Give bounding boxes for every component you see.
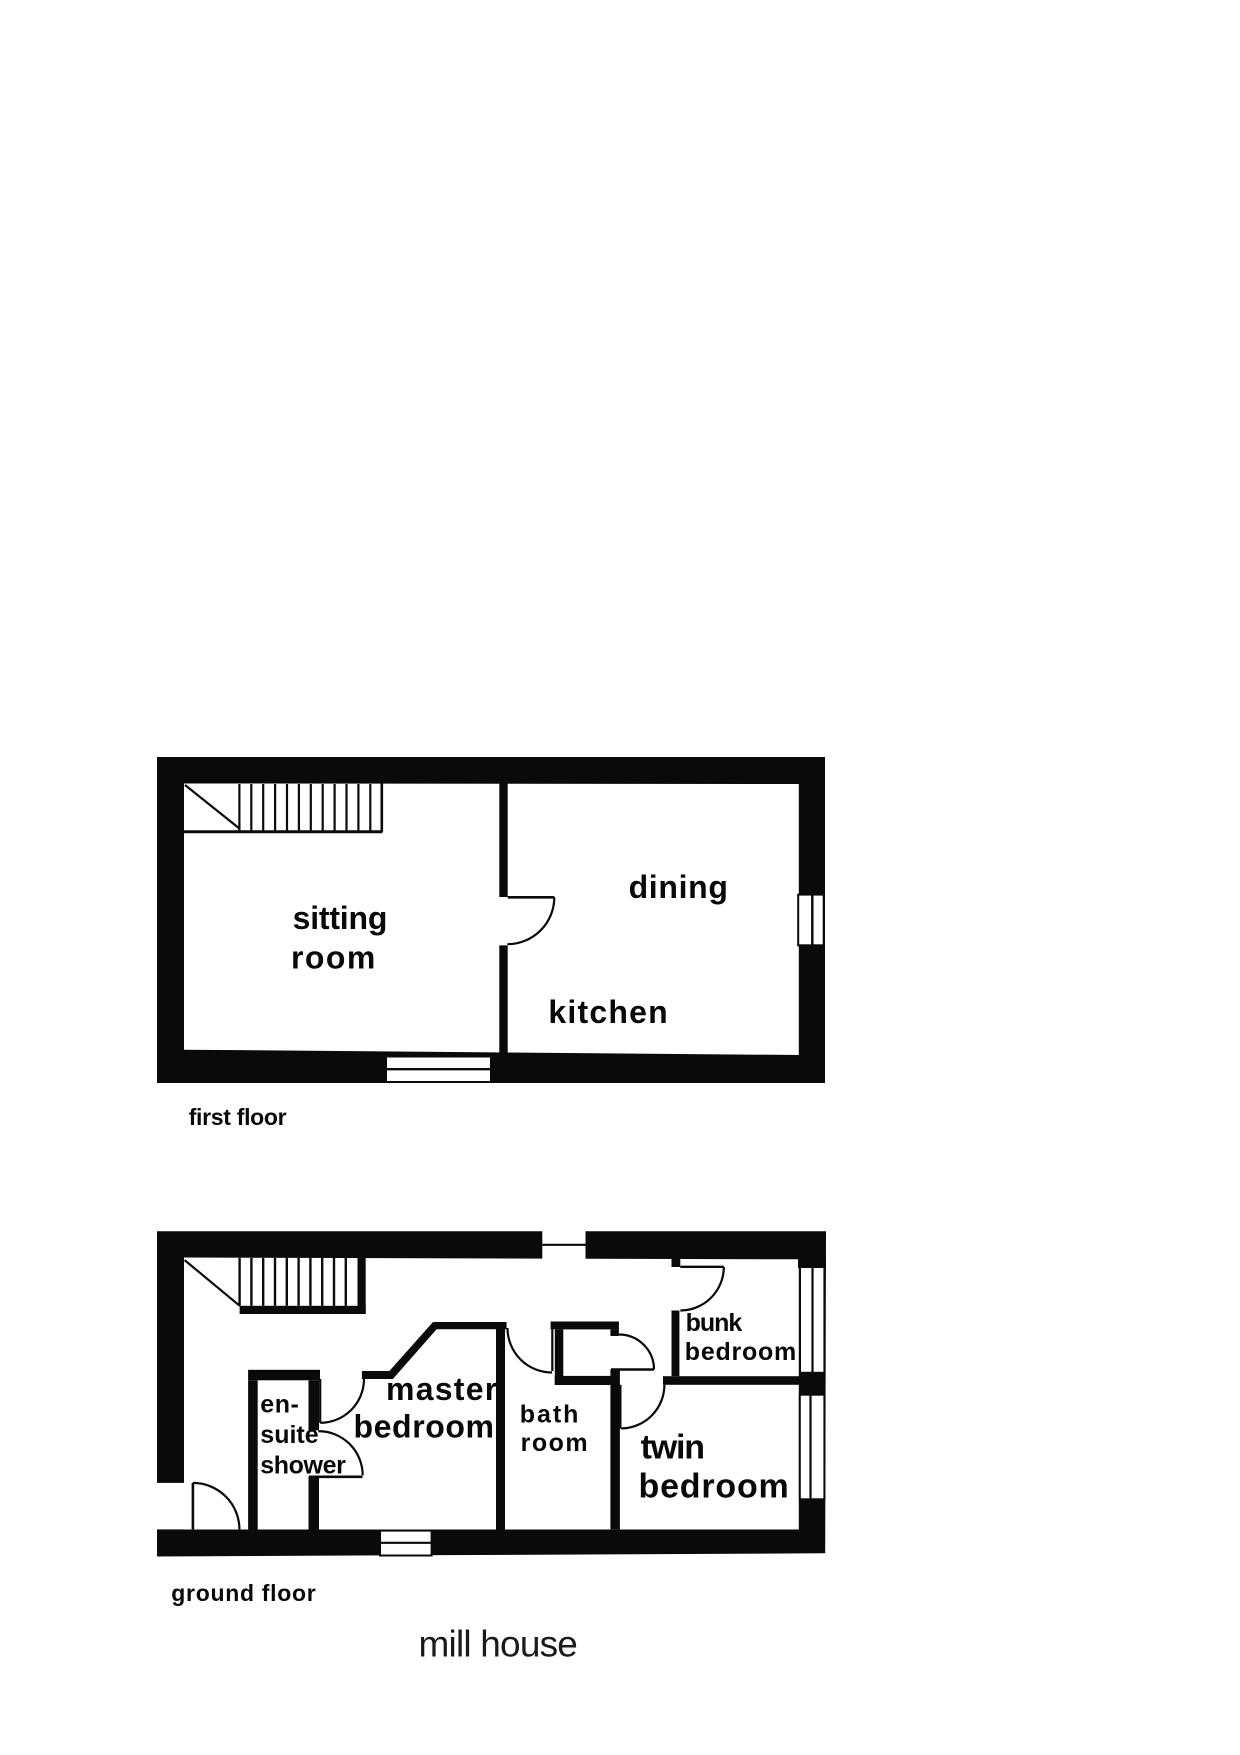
svg-text:master: master <box>386 1371 498 1407</box>
svg-text:bedroom: bedroom <box>354 1409 495 1445</box>
svg-text:first floor: first floor <box>189 1104 287 1130</box>
svg-text:mill house: mill house <box>419 1623 578 1664</box>
svg-text:bedroom: bedroom <box>685 1338 797 1366</box>
svg-text:kitchen: kitchen <box>548 994 668 1030</box>
svg-text:dining: dining <box>629 869 729 905</box>
svg-text:room: room <box>291 940 377 976</box>
svg-text:bath: bath <box>520 1401 581 1429</box>
svg-text:bedroom: bedroom <box>639 1467 790 1505</box>
svg-text:twin: twin <box>641 1429 704 1467</box>
svg-text:shower: shower <box>260 1452 346 1480</box>
svg-text:suite: suite <box>260 1421 318 1449</box>
svg-text:en-: en- <box>260 1391 299 1419</box>
svg-text:room: room <box>521 1429 590 1457</box>
svg-text:bunk: bunk <box>686 1309 743 1337</box>
svg-text:ground floor: ground floor <box>171 1580 316 1606</box>
svg-text:sitting: sitting <box>293 900 388 936</box>
